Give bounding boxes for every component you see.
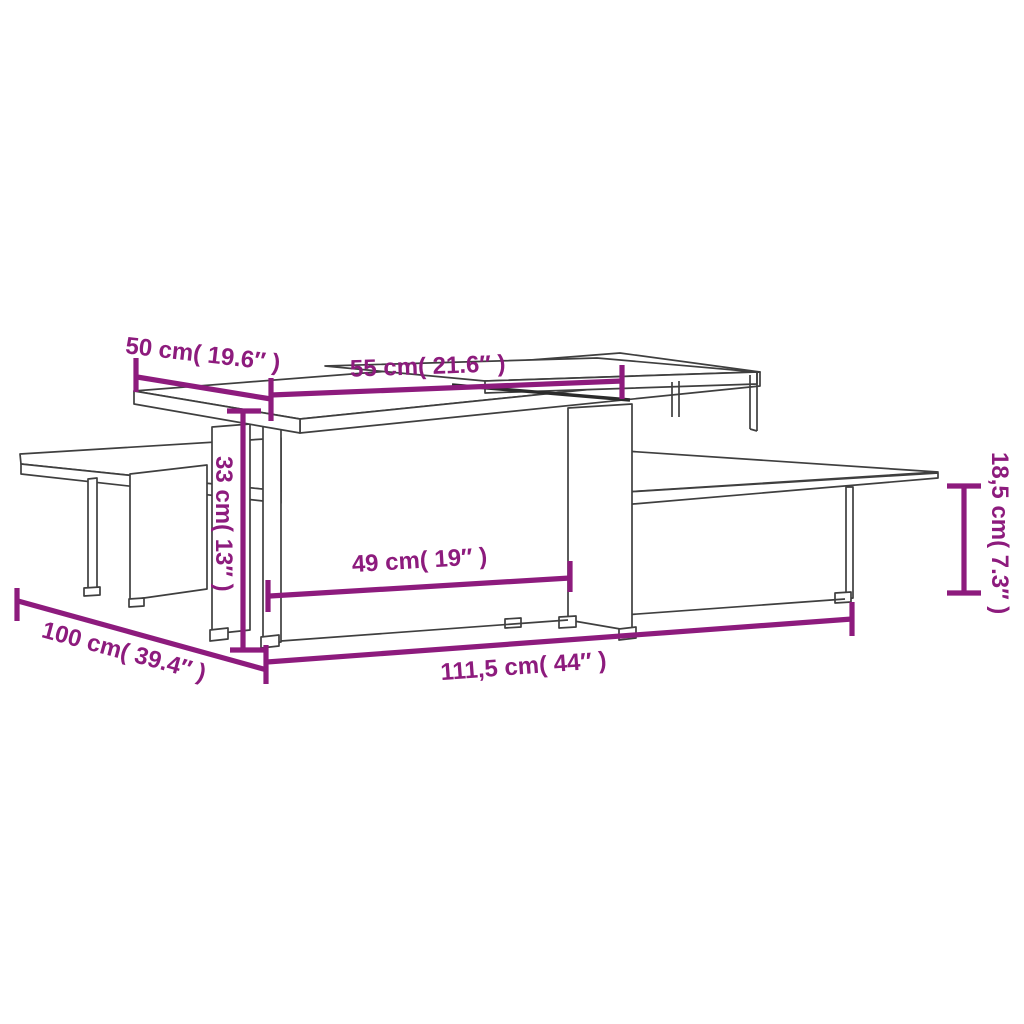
furniture-drawing [20,353,938,648]
dimension-label-50cm: 50 cm( 19.6″ ) [124,332,282,376]
furniture-dimension-diagram: 50 cm( 19.6″ ) 55 cm( 21.6″ ) 33 cm( 13″… [0,0,1024,1024]
left-table-front-leg-foot [84,587,100,596]
tall-table-right-panel-group [559,404,636,640]
dimension-label-33cm: 33 cm( 13″ ) [210,456,237,592]
diagram-stage: 50 cm( 19.6″ ) 55 cm( 21.6″ ) 33 cm( 13″… [0,0,1024,1024]
left-table-side-panel [130,465,207,600]
right-table-support-foot [835,592,851,603]
dimension-label-55cm: 55 cm( 21.6″ ) [350,350,506,382]
right-floor-edge [610,599,845,616]
shelf-support-base [750,429,757,431]
tall-table-right-panel-foot-front [559,616,576,628]
dimension-label-18_5cm: 18,5 cm( 7.3″ ) [986,452,1013,614]
tall-table-right-panel [568,404,632,631]
middle-floor-edge [281,620,568,641]
right-table-support-panel [846,487,853,599]
dimension-label-111_5cm: 111,5 cm( 44″ ) [440,647,608,686]
dimension-label-49cm: 49 cm( 19″ ) [351,543,488,578]
tall-table-left-panel-foot [210,628,228,641]
dimension-18_5cm [947,486,981,593]
dimension-line-49cm [270,578,570,596]
left-table-panel-foot [129,598,144,607]
left-table-front-leg [88,478,97,590]
dimension-label-100cm: 100 cm( 39.4″ ) [39,617,209,687]
